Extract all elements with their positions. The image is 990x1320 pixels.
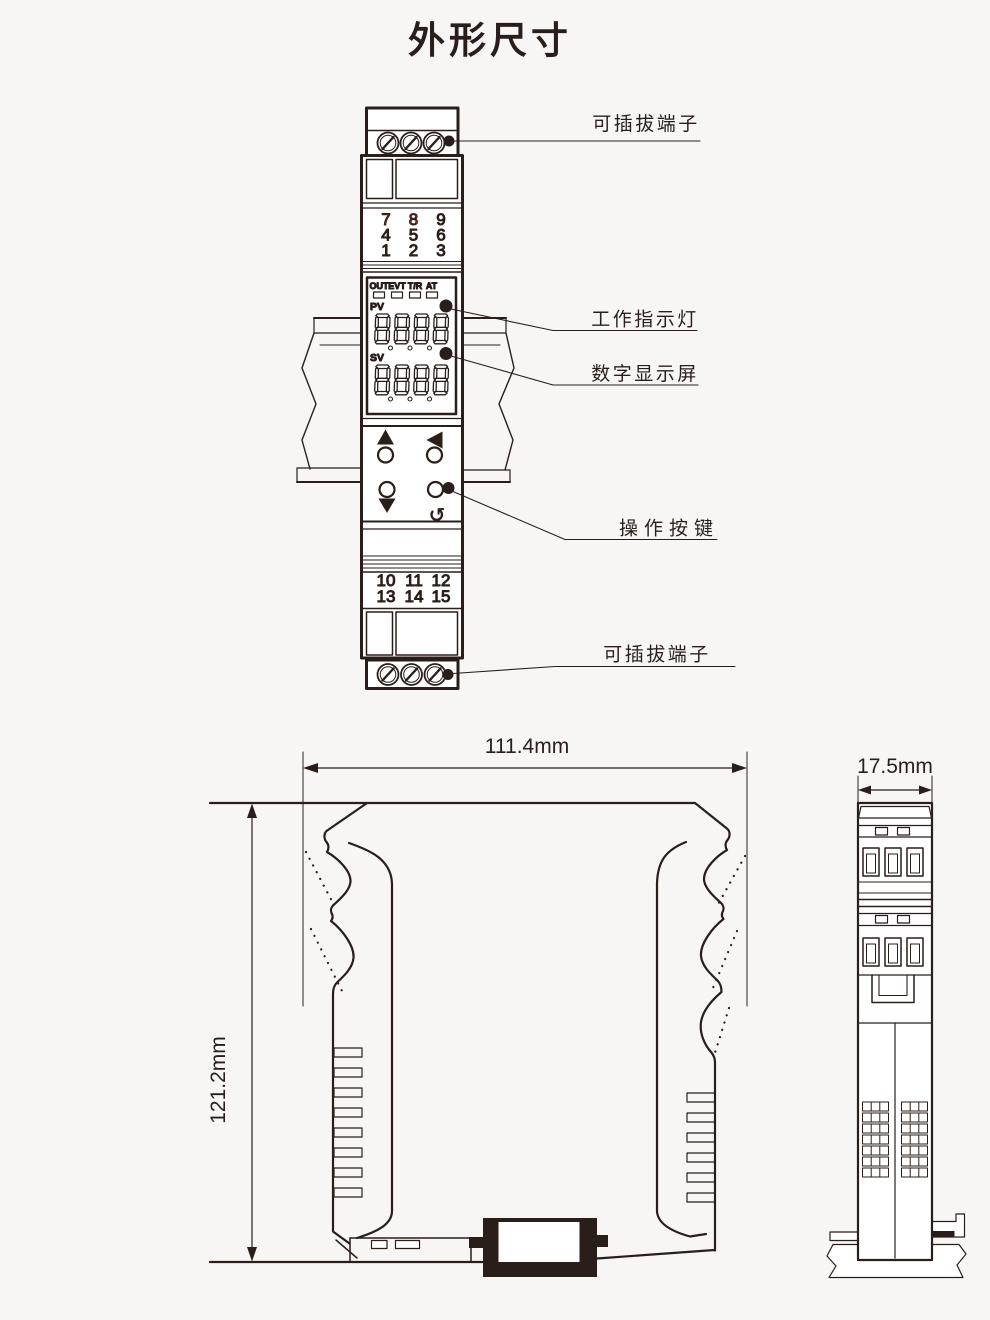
screw-icon (378, 664, 399, 685)
bottom-terminal-block (367, 660, 459, 689)
din-rail-cross-section (469, 1218, 608, 1277)
terminal-number: 14 (405, 587, 424, 606)
callout-operation-buttons: 操作按键 (619, 518, 719, 540)
arrowhead-icon (919, 786, 932, 795)
callout-top-terminal: 可插拔端子 (592, 113, 700, 135)
width-dimension-label: 111.4mm (485, 735, 569, 758)
technical-drawing: 外形尺寸 (0, 0, 990, 1320)
side-view (827, 776, 966, 1278)
profile-view (210, 752, 747, 1277)
terminal-number: 15 (432, 587, 451, 606)
callout-dot (443, 669, 454, 680)
left-wall-inner (349, 843, 392, 1238)
screw-icon (401, 664, 422, 685)
callout-bottom-terminal: 可插拔端子 (603, 644, 711, 666)
page-title: 外形尺寸 (408, 20, 572, 61)
mounting-foot (336, 1238, 471, 1261)
digital-display: OUT EVT T/R AT PV SV (367, 278, 456, 415)
terminal-number: 13 (377, 587, 396, 606)
callout-dot (440, 347, 453, 360)
indicator-label: OUT (370, 281, 390, 291)
arrowhead-icon (247, 804, 257, 819)
callout-dot (444, 136, 455, 147)
indicator-label: T/R (408, 281, 423, 291)
arrowhead-icon (303, 763, 318, 773)
height-dimension (247, 804, 257, 1262)
width-dimension (303, 752, 747, 1006)
din-rail-left (297, 318, 361, 482)
callout-digital-display: 数字显示屏 (591, 363, 699, 385)
indicator-label: AT (426, 281, 438, 291)
screw-icon (425, 664, 446, 685)
left-vent-slots (334, 1048, 362, 1197)
callout-leaders (451, 141, 735, 674)
arrowhead-icon (858, 786, 871, 795)
arrowhead-icon (247, 1247, 257, 1262)
callout-dot (440, 300, 453, 313)
depth-dimension (858, 776, 932, 802)
height-dimension-label: 121.2mm (207, 1036, 230, 1124)
din-rail-right (463, 318, 514, 482)
terminal-number: 1 (381, 241, 390, 260)
screw-icon (401, 133, 422, 154)
top-terminal-block (367, 108, 459, 156)
terminal-number: 3 (436, 241, 445, 260)
right-wall-outline (695, 803, 730, 1251)
return-arrow-icon: ↺ (429, 505, 446, 527)
depth-dimension-label: 17.5mm (857, 755, 933, 778)
right-vent-slots (687, 1093, 715, 1202)
right-wall-inner (657, 842, 706, 1237)
arrowhead-icon (732, 763, 747, 773)
pv-label: PV (370, 301, 384, 313)
bottom-terminal-numbers: 10 11 12 13 14 15 (377, 571, 451, 606)
device-front-view: 7 8 9 4 5 6 1 2 3 OUT EVT T/R AT (362, 108, 463, 689)
terminal-number: 2 (409, 241, 418, 260)
screw-icon (378, 133, 399, 154)
sv-label: SV (370, 352, 384, 364)
indicator-label: EVT (388, 281, 406, 291)
callout-indicator-lights: 工作指示灯 (591, 309, 699, 331)
screw-icon (424, 133, 445, 154)
callout-dot (443, 482, 455, 494)
outline-dimensions-page: 外形尺寸 (0, 0, 990, 1320)
dotted-break-lines (306, 852, 745, 1056)
